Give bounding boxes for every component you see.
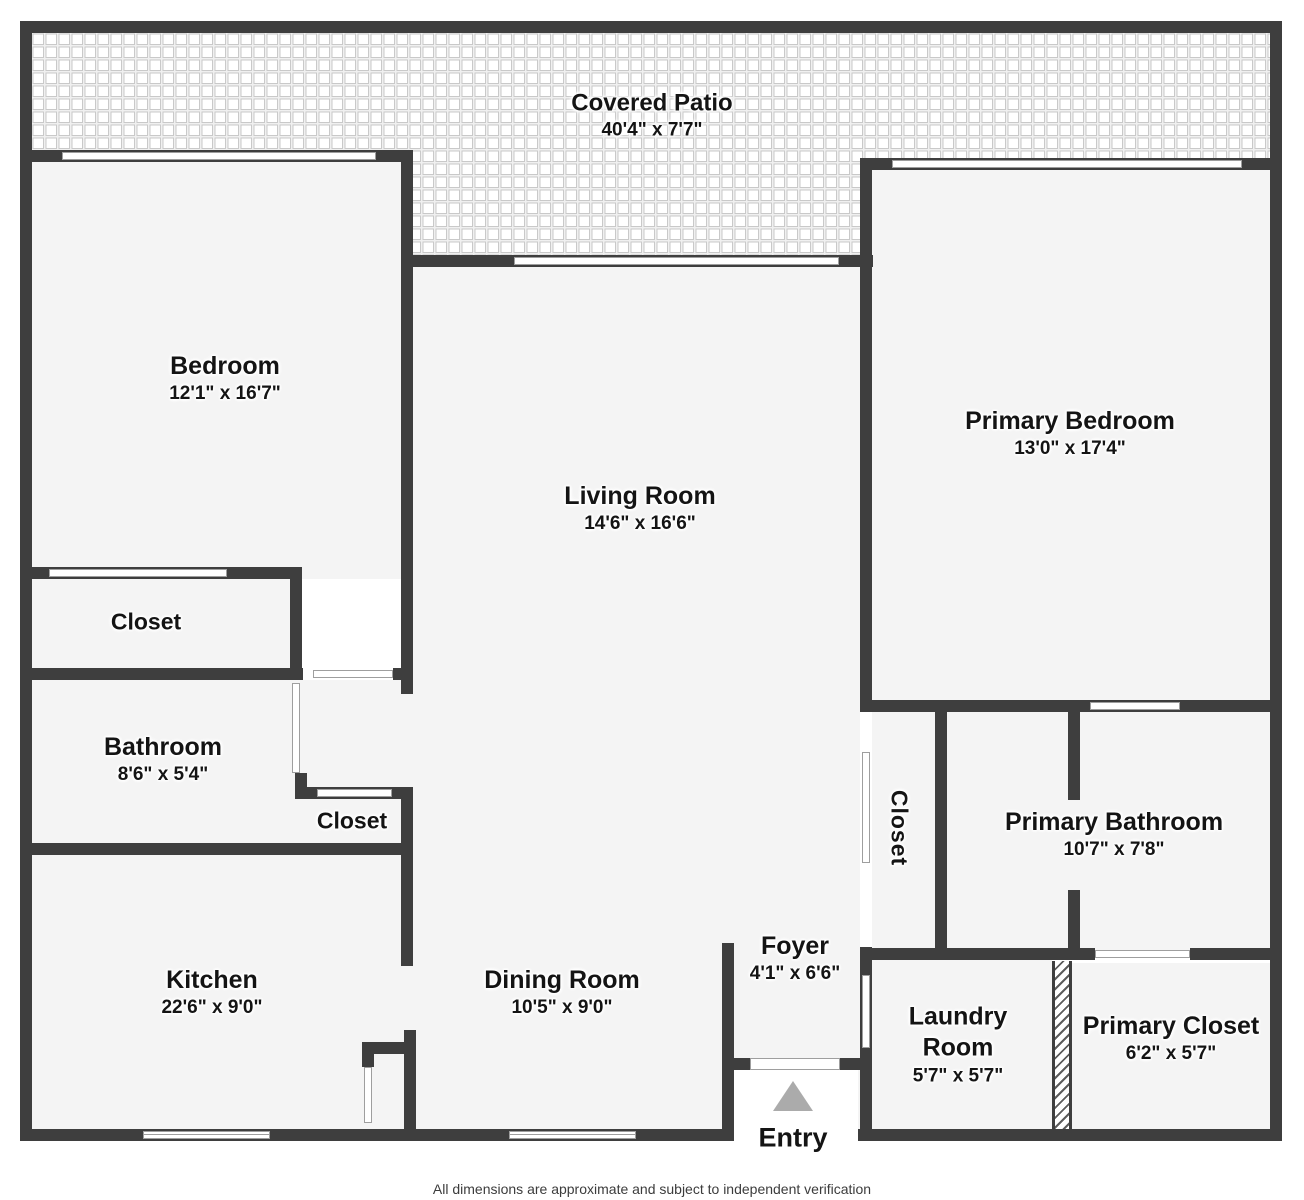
room-name: Bedroom xyxy=(169,351,281,382)
room-label-foyer: Foyer 4'1" x 6'6" xyxy=(750,931,840,987)
wall xyxy=(393,668,413,680)
room-label-living-room: Living Room 14'6" x 16'6" xyxy=(564,481,715,537)
door-walk-in-closet xyxy=(862,752,870,863)
room-dims: 12'1" x 16'7" xyxy=(169,382,281,407)
wall xyxy=(935,712,947,950)
room-name: Laundry Room xyxy=(892,1001,1024,1064)
wall xyxy=(1068,890,1080,950)
wall xyxy=(1068,712,1080,800)
room-dims: 4'1" x 6'6" xyxy=(750,962,840,987)
room-name: Living Room xyxy=(564,481,715,512)
wall xyxy=(290,567,302,680)
window-bedroom-patio xyxy=(62,152,376,160)
room-dims: 10'7" x 7'8" xyxy=(1005,838,1223,863)
room-name: Closet xyxy=(885,790,914,866)
sliding-door-living-patio xyxy=(514,257,839,265)
room-dims: 40'4" x 7'7" xyxy=(571,119,732,144)
entry-arrow-icon xyxy=(773,1081,813,1111)
room-label-bedroom-closet: Closet xyxy=(111,608,181,637)
room-label-primary-closet: Primary Closet 6'2" x 5'7" xyxy=(1083,1011,1259,1067)
wall xyxy=(840,1058,860,1070)
door-bathroom-primary-closet xyxy=(1095,950,1190,958)
wall xyxy=(362,1042,374,1067)
room-label-primary-bathroom: Primary Bathroom 10'7" x 7'8" xyxy=(1005,807,1223,863)
entry-label: Entry xyxy=(758,1123,827,1154)
room-name: Closet xyxy=(111,608,181,637)
door-foyer-laundry xyxy=(862,975,870,1048)
wall xyxy=(32,843,413,855)
room-label-bathroom: Bathroom 8'6" x 5'4" xyxy=(104,732,222,788)
door-primary-bedroom-suite xyxy=(1090,702,1180,710)
room-label-dining-room: Dining Room 10'5" x 9'0" xyxy=(484,965,640,1021)
wall xyxy=(860,158,872,712)
room-dims: 8'6" x 5'4" xyxy=(104,763,222,788)
wall xyxy=(401,150,413,694)
room-label-bedroom: Bedroom 12'1" x 16'7" xyxy=(169,351,281,407)
room-dims: 14'6" x 16'6" xyxy=(564,512,715,537)
floor-plan: Covered Patio 40'4" x 7'7" Bedroom 12'1"… xyxy=(0,0,1304,1200)
door-bathroom xyxy=(292,683,300,773)
room-dims: 10'5" x 9'0" xyxy=(484,996,640,1021)
room-name: Primary Closet xyxy=(1083,1011,1259,1042)
room-name: Dining Room xyxy=(484,965,640,996)
room-name: Foyer xyxy=(750,931,840,962)
room-name: Covered Patio xyxy=(571,89,732,119)
wall xyxy=(20,21,1282,33)
opening-hall-living xyxy=(313,670,393,678)
wall xyxy=(32,668,303,680)
wall xyxy=(734,1058,750,1070)
window-kitchen xyxy=(143,1131,270,1139)
room-name: Kitchen xyxy=(161,965,262,996)
wall xyxy=(401,787,413,966)
disclaimer-text: All dimensions are approximate and subje… xyxy=(433,1181,871,1197)
room-label-hall-closet: Closet xyxy=(317,807,387,836)
room-dims: 22'6" x 9'0" xyxy=(161,996,262,1021)
hatched-wall xyxy=(1052,961,1072,1129)
wall xyxy=(20,21,32,1141)
wall xyxy=(860,948,1095,960)
room-label-walk-in-closet: Closet xyxy=(885,790,914,866)
window-primary-bedroom-patio xyxy=(892,160,1242,168)
wall xyxy=(722,943,734,1141)
door-pantry xyxy=(364,1067,372,1123)
wall xyxy=(860,700,1282,712)
entry-door-threshold xyxy=(750,1058,840,1070)
room-dims: 13'0" x 17'4" xyxy=(965,437,1175,462)
wall xyxy=(858,1129,1282,1141)
room-name: Bathroom xyxy=(104,732,222,763)
room-label-laundry-room: Laundry Room 5'7" x 5'7" xyxy=(892,1001,1024,1088)
room-label-kitchen: Kitchen 22'6" x 9'0" xyxy=(161,965,262,1021)
room-dims: 5'7" x 5'7" xyxy=(892,1064,1024,1089)
room-dims: 6'2" x 5'7" xyxy=(1083,1042,1259,1067)
room-name: Closet xyxy=(317,807,387,836)
window-bedroom-closet xyxy=(49,569,227,577)
room-label-covered-patio: Covered Patio 40'4" x 7'7" xyxy=(571,89,732,144)
room-name: Primary Bedroom xyxy=(965,406,1175,437)
window-dining xyxy=(509,1131,636,1139)
wall xyxy=(404,1030,416,1129)
wall xyxy=(1190,948,1282,960)
door-hall-closet xyxy=(317,789,392,797)
room-label-primary-bedroom: Primary Bedroom 13'0" x 17'4" xyxy=(965,406,1175,462)
wall xyxy=(1270,21,1282,1141)
room-name: Primary Bathroom xyxy=(1005,807,1223,838)
